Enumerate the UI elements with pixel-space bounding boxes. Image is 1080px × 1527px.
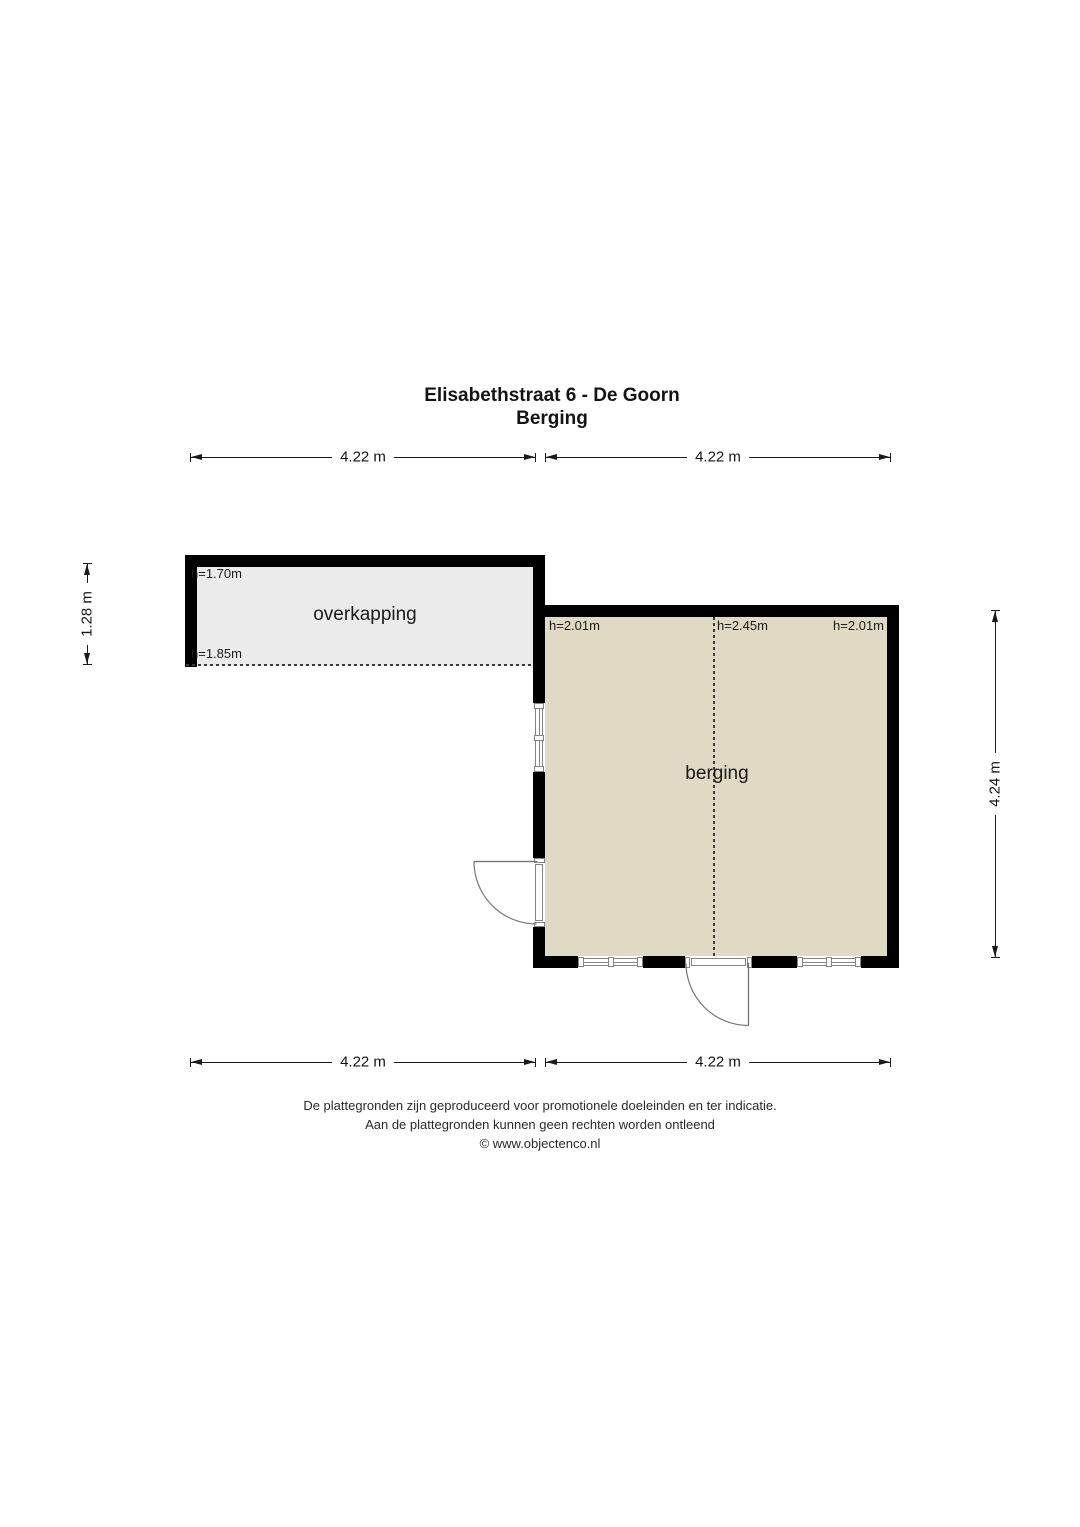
floorplan-page: Elisabethstraat 6 - De Goorn Berging 4.2…: [0, 0, 1080, 1527]
door-swing-left: [474, 862, 537, 925]
door-swing-bottom: [686, 963, 749, 1026]
dimension-label: 4.22 m: [687, 1054, 749, 1071]
door-swing-overlay: [0, 0, 1080, 1527]
height-label-overkapping-top: h=1.70m: [191, 566, 242, 581]
footer-line-1: De plattegronden zijn geproduceerd voor …: [0, 1096, 1080, 1115]
footer-disclaimer: De plattegronden zijn geproduceerd voor …: [0, 1096, 1080, 1153]
berging-label: berging: [685, 763, 748, 785]
arrow-right-icon: [879, 1059, 890, 1065]
arrow-left-icon: [546, 1059, 557, 1065]
dimension-bottom-right: 4.22 m: [545, 1055, 891, 1069]
dimension-bottom-left: 4.22 m: [190, 1055, 536, 1069]
overkapping-label: overkapping: [313, 604, 417, 626]
height-label-overkapping-bottom: h=1.85m: [191, 646, 242, 661]
dimension-label: 4.22 m: [332, 1054, 394, 1071]
height-label-berging-left: h=2.01m: [549, 618, 600, 633]
footer-line-2: Aan de plattegronden kunnen geen rechten…: [0, 1115, 1080, 1134]
footer-line-3: © www.objectenco.nl: [0, 1134, 1080, 1153]
height-label-berging-right: h=2.01m: [833, 618, 884, 633]
height-label-berging-center: h=2.45m: [717, 618, 768, 633]
arrow-left-icon: [191, 1059, 202, 1065]
arrow-right-icon: [524, 1059, 535, 1065]
